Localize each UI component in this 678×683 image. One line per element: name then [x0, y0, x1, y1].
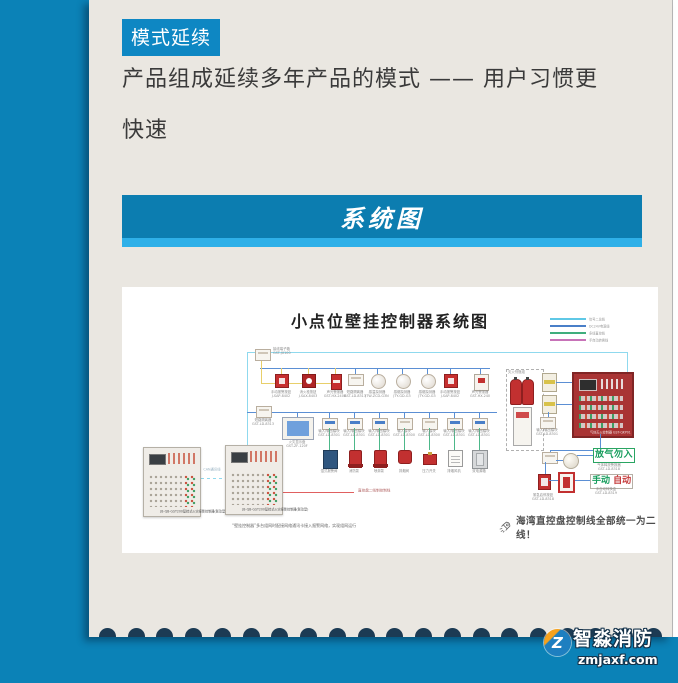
body-text-line1: 产品组成延续多年产品的模式 —— 用户习惯更: [122, 61, 598, 93]
rocket-icon: [498, 520, 512, 534]
device-label: 声光警报器GST-HX-240B: [324, 390, 346, 399]
fan-control-box: [448, 450, 463, 467]
fire-pump: [374, 450, 387, 468]
legend-row-1: DC24V电源线: [550, 323, 640, 329]
wire: [247, 352, 627, 353]
panel-indicators: [266, 473, 278, 505]
device-label: 气体释放警报器GST-LD-8318: [597, 463, 621, 472]
junction-box: [255, 349, 271, 361]
fire-display-panel: [282, 417, 314, 440]
scallop-bump: [271, 628, 288, 637]
manual-call-point: [444, 374, 458, 388]
device-label: 输入/输出模块GST-LD-8301: [443, 429, 465, 438]
device-label: 消火栓按钮J-SAX-8403: [299, 390, 317, 399]
system-diagram: 小点位壁挂控制器系统图 信号二总线DC24V电源线多线直控线手自动转换线 “壁挂…: [122, 287, 658, 553]
brand-logo: Z 智淼消防 zmjaxf.com: [544, 624, 658, 667]
diagram-caption: “壁挂控制器”多台组网时配接网络通讯卡接入报警网络，实现组网运行: [232, 523, 342, 529]
cylinder-group-label: 灭火剂瓶组: [508, 370, 525, 374]
alarm-valve: [323, 450, 338, 469]
agent-cylinder: [522, 379, 534, 405]
detector: [421, 374, 436, 389]
device-label: 短路隔离器GST-LD-8313: [252, 418, 274, 427]
no-entry-sign: 放气勿入: [593, 448, 635, 463]
scallop-bump: [358, 628, 375, 637]
wire: [556, 382, 572, 383]
legend-label: 手自动转换线: [589, 338, 608, 342]
manual-call-point: [275, 374, 289, 388]
wire: [575, 480, 590, 481]
scallop-bump: [473, 628, 490, 637]
legend-line-swatch: [550, 318, 586, 321]
power-cabinet: [472, 450, 488, 469]
line-isolator: [256, 406, 272, 418]
emergency-start-stop-button: [538, 474, 551, 490]
wire: [261, 383, 335, 384]
scallop-bump: [243, 628, 260, 637]
device-label: 排烟风机: [447, 469, 460, 473]
brand-site: zmjaxf.com: [578, 652, 658, 667]
gas-panel-screen: [579, 379, 597, 391]
device-label: 感温探测器JTW-ZCD-G3N: [365, 390, 388, 399]
right-edge-strip: [672, 0, 678, 637]
device-label: 紧急启停按钮GST-LD-8318: [532, 493, 554, 502]
scallop-bump: [128, 628, 145, 637]
auto-word: 自动: [613, 476, 631, 486]
device-label: 感烟探测器JTY-GD-G3: [393, 390, 410, 399]
section-tag: 模式延续: [122, 19, 220, 56]
gas-panel-zone-row: [579, 423, 623, 428]
scallop-bump: [501, 628, 518, 637]
panel-indicators: [184, 475, 196, 507]
legend-label: 信号二总线: [589, 317, 605, 321]
device-label: 输入/输出模块GST-LD-8301: [536, 428, 558, 437]
scallop-bump: [386, 628, 403, 637]
banner-title: 系统图: [340, 199, 424, 234]
gas-panel-buttons: [601, 379, 624, 389]
wire: [247, 412, 497, 413]
device-label: 输入模块GST-LD-8300: [393, 429, 415, 438]
content-card: 模式延续 产品组成延续多年产品的模式 —— 用户习惯更 快速 系统图 小点位壁挂…: [89, 0, 672, 637]
detector: [396, 374, 411, 389]
panel-model-label: JB-QB-GST200壁挂式火灾报警控制器(联动型): [160, 510, 183, 515]
banner-accent-stripe: [122, 238, 642, 247]
device-label: 声光警报器GST-HX-240: [470, 390, 490, 399]
legend-line-swatch: [550, 332, 586, 335]
can-link-label: CAN通讯线: [202, 467, 222, 472]
scallop-bump: [329, 628, 346, 637]
device-label: 输入/输出模块GST-LD-8301: [468, 429, 490, 438]
fire-pump: [349, 450, 362, 468]
slogan-text: 海湾直控盘控制线全部统一为二线！: [516, 513, 658, 541]
device-label: 消防泵: [349, 469, 359, 473]
device-label: 喷淋泵: [374, 469, 384, 473]
detector: [371, 374, 386, 389]
device-label: 输入模块GST-LD-8300: [418, 429, 440, 438]
strobe-alarm: [474, 374, 489, 391]
legend-row-2: 多线直控线: [550, 330, 640, 336]
diagram-legend: 信号二总线DC24V电源线多线直控线手自动转换线: [550, 316, 640, 344]
gas-panel-label: 气体灭火控制器 GST-QKP01: [590, 431, 616, 436]
wire: [545, 462, 546, 474]
device-label: 输入/输出模块GST-LD-8301: [368, 429, 390, 438]
agent-cylinder: [510, 379, 522, 405]
panel-leds: [168, 453, 195, 464]
scallop-bump: [156, 628, 173, 637]
device-label: 手自动转换盒GST-LD-8319: [595, 487, 617, 496]
device-label: 火灾显示盘GST-ZF-120F: [286, 440, 307, 449]
device-label: 双电源箱: [472, 469, 485, 473]
legend-line-swatch: [550, 325, 586, 328]
wire: [627, 352, 628, 372]
smoke-detector: [542, 373, 557, 392]
heat-detector: [542, 395, 557, 414]
wire: [201, 478, 225, 479]
legend-label: DC24V电源线: [589, 324, 610, 328]
brand-name: 智淼消防: [573, 624, 658, 651]
gas-extinguishing-panel: 气体灭火控制器 GST-QKP01: [572, 372, 634, 438]
wire: [556, 460, 563, 461]
device-label: 短路隔离器GST-LD-8313: [344, 390, 366, 399]
cabinet-extinguisher: [513, 407, 532, 446]
control-panel-2: JB-QB-GST200壁挂式火灾报警控制器(联动型): [225, 445, 283, 515]
scallop-bump: [415, 628, 432, 637]
scallop-bump: [99, 628, 116, 637]
brand-logo-text: 智淼消防 zmjaxf.com: [573, 624, 658, 667]
legend-row-0: 信号二总线: [550, 316, 640, 322]
panel-model-label: JB-QB-GST200壁挂式火灾报警控制器(联动型): [242, 508, 265, 513]
device-label: 压力开关: [422, 469, 435, 473]
device-label: 感烟探测器JTY-GD-G3: [418, 390, 435, 399]
wire: [247, 352, 248, 445]
junction-box-label: 接线端子箱GST-JX100: [273, 347, 291, 356]
device-label: 排烟阀: [399, 469, 409, 473]
device-label: 输入/输出模块GST-LD-8301: [343, 429, 365, 438]
scallop-bump: [444, 628, 461, 637]
device-label: 湿式报警阀: [321, 469, 338, 473]
panel-button-grid: [231, 473, 264, 505]
panel-leds: [250, 451, 277, 462]
direct-line-label: 直控盘二线制控制线: [358, 488, 390, 493]
control-panel-1: JB-QB-GST200壁挂式火灾报警控制器(联动型): [143, 447, 201, 517]
page: 模式延续 产品组成延续多年产品的模式 —— 用户习惯更 快速 系统图 小点位壁挂…: [0, 0, 678, 683]
device-label: 输入/输出模块GST-LD-8301: [318, 429, 340, 438]
gas-panel-zone-row: [579, 405, 623, 410]
device-label: 手动报警按钮J-SAP-8402: [271, 390, 291, 399]
io-module: [348, 374, 364, 386]
diagram-slogan: 海湾直控盘控制线全部统一为二线！: [498, 513, 658, 541]
pressure-switch: [423, 454, 437, 465]
manual-word: 手动: [592, 476, 610, 486]
sounder-strobe: [331, 374, 342, 390]
device-label: 手动报警按钮J-SAP-8402: [440, 390, 460, 399]
section-banner: 系统图: [122, 195, 642, 238]
brand-logo-icon: Z: [544, 629, 571, 656]
smoke-damper: [398, 450, 412, 464]
hydrant-button: [302, 374, 316, 388]
gas-panel-zone-row: [579, 414, 623, 419]
gas-panel-zone-row: [579, 396, 623, 401]
wire: [282, 492, 354, 493]
legend-line-swatch: [550, 339, 586, 342]
legend-label: 多线直控线: [589, 331, 605, 335]
scallop-bump: [214, 628, 231, 637]
wire: [549, 480, 558, 481]
scallop-bump: [300, 628, 317, 637]
panel-screen: [231, 452, 248, 463]
panel-screen: [149, 454, 166, 465]
discharge-indicator: [558, 472, 575, 493]
panel-button-grid: [149, 475, 182, 507]
body-text-line2: 快速: [122, 112, 168, 144]
wire: [556, 404, 572, 405]
legend-row-3: 手自动转换线: [550, 337, 640, 343]
scallop-bump: [185, 628, 202, 637]
wire: [261, 361, 262, 383]
wire: [260, 368, 490, 369]
